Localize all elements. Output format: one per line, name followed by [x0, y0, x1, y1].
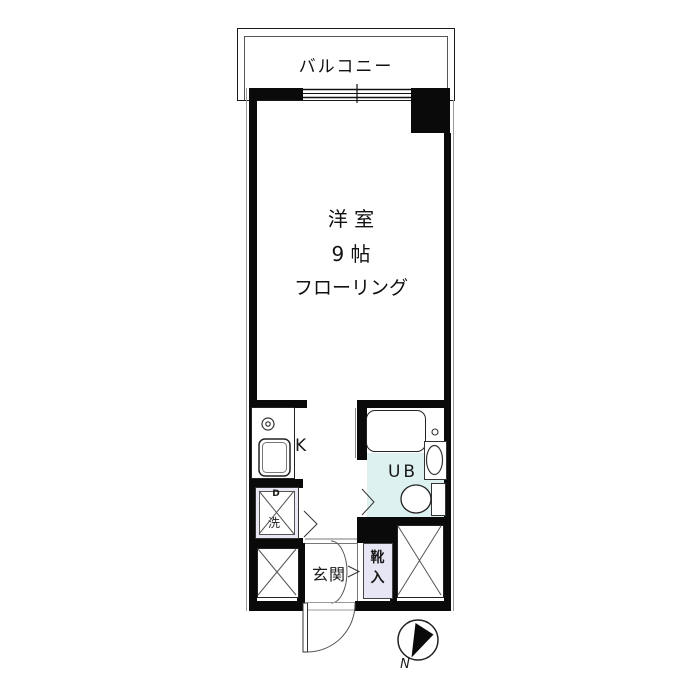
shoe-cabinet-label: 靴入 — [363, 548, 392, 588]
shaft-right-cross — [398, 526, 441, 595]
plan-linework — [0, 0, 700, 700]
room-floor-label: フローリング — [258, 273, 444, 300]
floor-plan: バルコニー — [0, 0, 700, 700]
kitchen-sink — [259, 439, 290, 476]
unit-bath-label: UB — [367, 462, 439, 482]
north-compass — [398, 620, 438, 660]
stove-icon — [262, 418, 274, 430]
washer-door-chevron — [304, 511, 317, 537]
room-size-label: 9 帖 — [258, 238, 444, 267]
tub-faucet-icon — [432, 429, 438, 435]
wall-face-lines — [247, 88, 454, 611]
shoe-char-1: 靴 — [371, 550, 385, 566]
kitchen-label: K — [295, 436, 306, 456]
washer-label: 洗 — [253, 514, 295, 531]
entrance-label: 玄関 — [303, 561, 355, 585]
washer-pan-mark: D — [255, 489, 297, 499]
window-sliding — [303, 84, 411, 103]
ub-door-chevron — [362, 489, 374, 515]
shoe-char-2: 入 — [371, 570, 385, 586]
entrance-door — [303, 603, 355, 653]
room-name-label: 洋 室 — [258, 203, 444, 232]
shaft-left-cross — [258, 549, 296, 595]
toilet-bowl — [401, 485, 431, 513]
north-label: N — [396, 657, 414, 672]
